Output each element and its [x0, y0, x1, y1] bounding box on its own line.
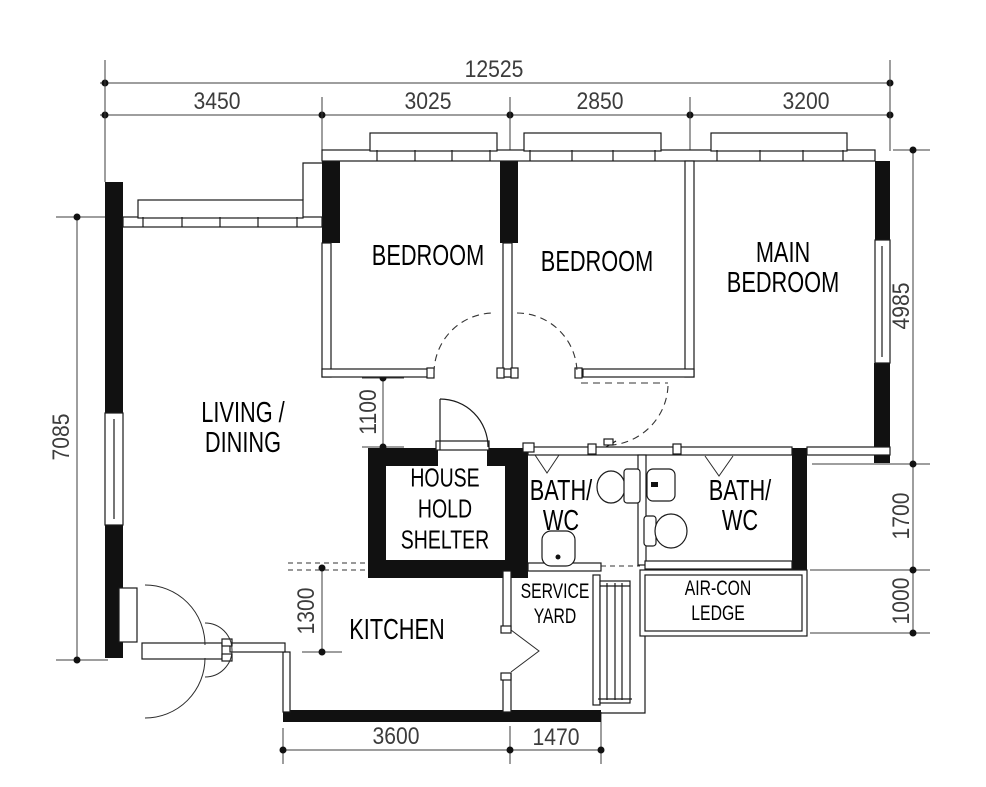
dim-label-top-2: 3025 — [405, 88, 452, 116]
stairs — [598, 581, 632, 703]
living-window-ledge — [138, 200, 303, 218]
dim-label-top-4: 3200 — [783, 88, 830, 116]
bath1-toilet-tank — [624, 469, 640, 503]
dim-label-right-2: 1700 — [888, 493, 916, 540]
room-label-living-dining: LIVING / DINING — [201, 398, 284, 458]
dim-label-hall: 1100 — [355, 389, 383, 434]
bedroom2-door-swing — [517, 313, 577, 373]
bedroom1-window-ledge — [370, 133, 497, 151]
room-label-kitchen: KITCHEN — [349, 615, 444, 645]
dim-label-bottom-2: 1470 — [533, 724, 580, 752]
bath2-door-symbol — [705, 456, 733, 476]
yard-door-symbol — [511, 630, 539, 672]
shelter-door-sill — [436, 441, 489, 450]
dim-label-top-3: 2850 — [577, 88, 624, 116]
dim-label-top-1: 3450 — [194, 88, 241, 116]
kitchen-boundary-dashed — [288, 563, 368, 570]
entrance-jamb — [119, 588, 137, 642]
bath1-toilet-bowl — [597, 471, 625, 503]
bath2-toilet-bowl — [655, 514, 687, 548]
entrance-door-leaf — [142, 643, 222, 659]
dim-label-left-height: 7085 — [48, 414, 76, 461]
dim-label-right-1: 4985 — [888, 283, 916, 330]
room-label-bath2: BATH/ WC — [709, 476, 771, 536]
shelter-door-swing — [440, 399, 488, 447]
room-label-bedroom1: BEDROOM — [372, 241, 484, 271]
bath1-door-symbol — [535, 455, 559, 473]
floorplan: BEDROOM BEDROOM MAIN BEDROOM LIVING / DI… — [0, 0, 986, 787]
dim-label-total-width: 12525 — [465, 56, 524, 84]
room-label-bedroom2: BEDROOM — [541, 247, 653, 277]
room-label-household-shelter: HOUSE HOLD SHELTER — [401, 463, 490, 556]
main-bedroom-door-swing — [612, 386, 668, 445]
windows — [105, 133, 890, 525]
entrance-door-swing-lower — [145, 658, 205, 718]
dim-label-right-3: 1000 — [888, 578, 916, 625]
main-bedroom-window-ledge — [711, 133, 847, 151]
dim-label-kitchen-entry: 1300 — [293, 588, 321, 635]
room-label-service-yard: SERVICE YARD — [521, 579, 590, 629]
entrance-door-swing-upper — [145, 585, 205, 645]
bath2-toilet-tank — [644, 516, 656, 546]
bedroom1-door-swing — [434, 313, 494, 373]
floorplan-drawing — [0, 0, 986, 787]
room-label-aircon-ledge: AIR-CON LEDGE — [685, 576, 752, 626]
room-label-bath1: BATH/ WC — [530, 476, 592, 536]
bedroom2-window-ledge — [524, 133, 661, 151]
room-label-main-bedroom: MAIN BEDROOM — [727, 238, 839, 298]
dim-label-bottom-1: 3600 — [373, 723, 420, 751]
